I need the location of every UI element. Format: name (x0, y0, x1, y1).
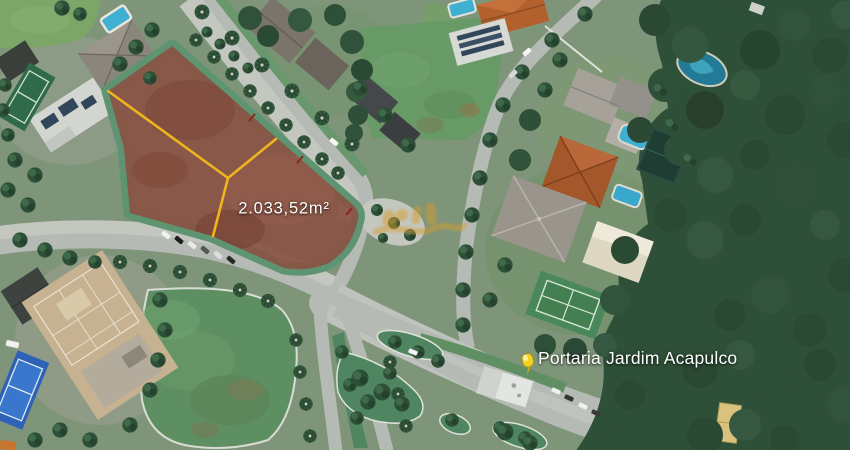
satellite-map: 2.033,52m² Portaria Jardim Acapulco (0, 0, 850, 450)
map-canvas (0, 0, 850, 450)
